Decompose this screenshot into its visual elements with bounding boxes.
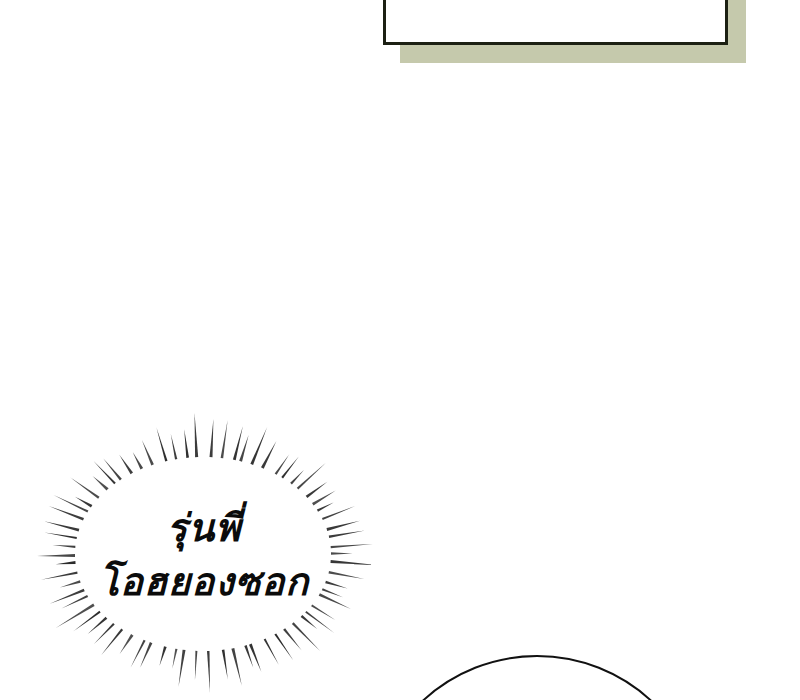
comic-page: รุ่นพี่ โอฮยองซอก — [0, 0, 800, 700]
dialogue-panel — [383, 0, 728, 45]
burst-bubble-text: รุ่นพี่ โอฮยองซอก — [43, 467, 365, 643]
burst-text-line2: โอฮยองซอก — [99, 556, 310, 608]
burst-text-line1: รุ่นพี่ — [167, 502, 241, 554]
